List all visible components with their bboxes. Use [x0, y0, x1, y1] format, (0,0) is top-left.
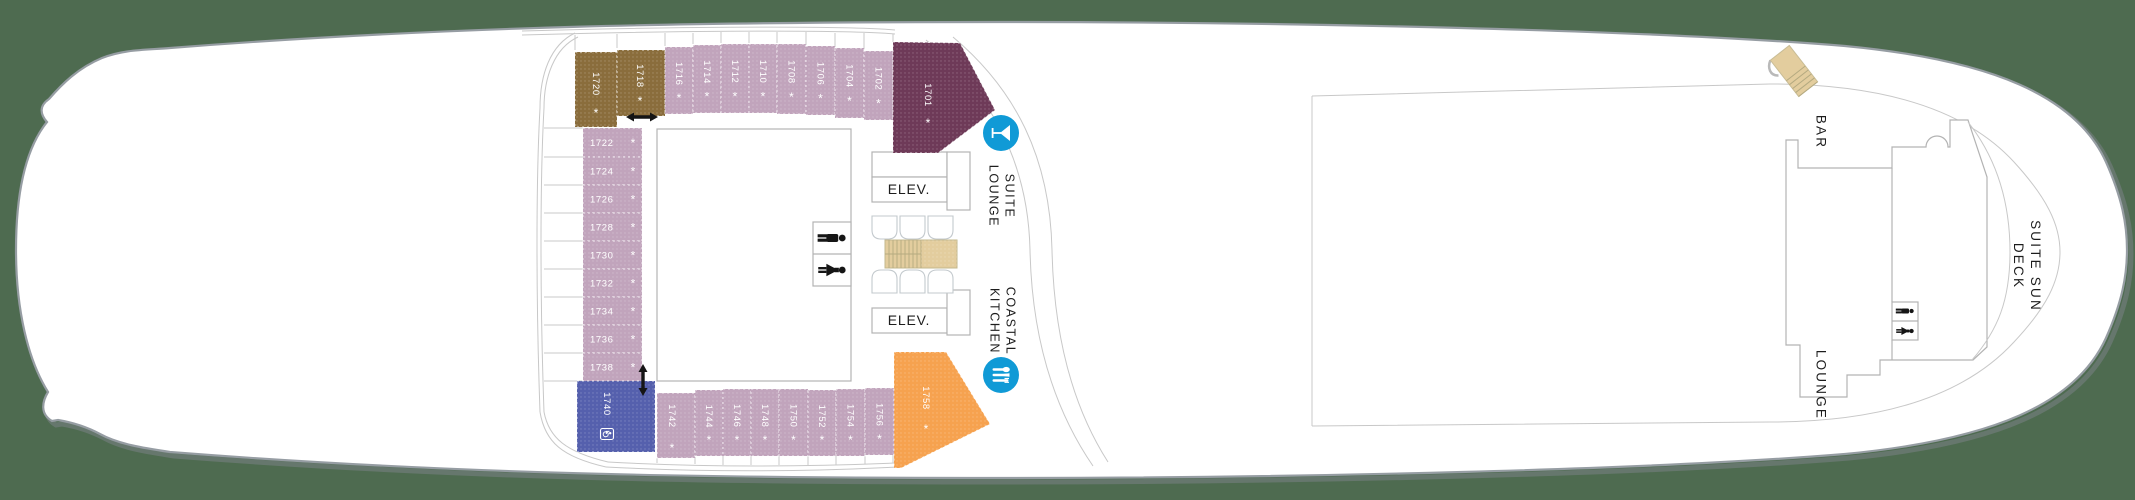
cabin-number: 1748 — [759, 404, 770, 428]
lounge-label: LOUNGE — [1812, 350, 1829, 420]
asterisk-symbol: * — [735, 433, 740, 447]
asterisk-symbol: * — [763, 433, 768, 447]
suite-lounge-label: SUITE LOUNGE — [985, 165, 1016, 227]
asterisk-symbol: * — [705, 90, 710, 104]
cabin-1708: 1708* — [777, 44, 806, 114]
cabin-number: 1724 — [590, 167, 614, 178]
cabin-1714: 1714* — [693, 45, 721, 113]
cabin-number: 1702 — [873, 67, 884, 91]
asterisk-symbol: * — [848, 433, 853, 447]
cabin-1748: 1748* — [751, 389, 779, 456]
cabin-1742: 1742* — [657, 393, 695, 458]
cabin-1734: 1734* — [583, 297, 642, 325]
cabin-1744: 1744* — [695, 390, 723, 456]
cabin-1724: 1724* — [583, 157, 642, 185]
cabin-number: 1720 — [590, 72, 601, 96]
cabin-1704: 1704* — [835, 48, 864, 118]
cabin-number: 1710 — [757, 60, 768, 84]
asterisk-symbol: * — [876, 96, 881, 110]
service-room — [947, 152, 970, 210]
asterisk-symbol: * — [594, 106, 599, 120]
elevator-label-bottom: ELEV. — [888, 312, 930, 328]
cabin-1726: 1726* — [583, 185, 642, 213]
cabin-number: 1742 — [666, 404, 677, 428]
asterisk-symbol: * — [818, 91, 823, 105]
asterisk-symbol: * — [631, 361, 636, 375]
asterisk-symbol: * — [631, 165, 636, 179]
asterisk-symbol: * — [707, 433, 712, 447]
cabin-1746: 1746* — [723, 389, 751, 456]
asterisk-symbol: * — [677, 91, 682, 105]
asterisk-symbol: * — [631, 249, 636, 263]
asterisk-symbol: * — [631, 277, 636, 291]
cabin-number: 1732 — [590, 279, 614, 290]
cabin-number: 1730 — [590, 251, 614, 262]
cabin-1718: 1718* — [617, 50, 665, 116]
cabin-1712: 1712* — [721, 44, 749, 113]
stairs-icon — [885, 240, 957, 268]
cabin-number: 1706 — [815, 62, 826, 86]
asterisk-symbol: * — [631, 305, 636, 319]
cabin-number: 1758 — [920, 386, 931, 410]
suite-sun-deck-label: SUITE SUN DECK — [2009, 212, 2043, 321]
asterisk-symbol: * — [926, 116, 931, 130]
asterisk-symbol: * — [638, 94, 643, 108]
asterisk-symbol: * — [733, 89, 738, 103]
cabin-1710: 1710* — [749, 44, 777, 113]
asterisk-symbol: * — [631, 221, 636, 235]
asterisk-symbol: * — [820, 433, 825, 447]
cabin-number: 1716 — [673, 62, 684, 86]
asterisk-symbol: * — [670, 441, 675, 455]
service-room — [947, 290, 970, 335]
martini-bar-icon — [983, 115, 1019, 151]
cabin-1732: 1732* — [583, 269, 642, 297]
cabin-1716: 1716* — [665, 47, 693, 114]
cabin-number: 1712 — [729, 60, 740, 84]
elevator-landing — [872, 152, 947, 177]
coastal-kitchen-label: COASTAL KITCHEN — [986, 287, 1017, 356]
asterisk-symbol: * — [631, 333, 636, 347]
asterisk-symbol: * — [631, 136, 636, 150]
cabin-number: 1738 — [590, 363, 614, 374]
cabin-number: 1704 — [844, 64, 855, 88]
cabin-number: 1736 — [590, 335, 614, 346]
asterisk-symbol: * — [791, 433, 796, 447]
dining-icon — [983, 357, 1019, 393]
cabin-1750: 1750* — [779, 389, 808, 456]
cabin-1720: 1720* — [575, 52, 617, 127]
asterisk-symbol: * — [761, 89, 766, 103]
asterisk-symbol: * — [877, 432, 882, 446]
cabin-number: 1726 — [590, 195, 614, 206]
cabin-number: 1746 — [731, 404, 742, 428]
cabin-1722: 1722* — [583, 128, 642, 157]
restroom-box-bow — [1892, 302, 1918, 340]
cabin-number: 1754 — [845, 404, 856, 428]
cabin-1728: 1728* — [583, 213, 642, 241]
asterisk-symbol: * — [631, 193, 636, 207]
asterisk-symbol: * — [924, 422, 929, 436]
deck-plan-stage: 1720*1718*1716*1714*1712*1710*1708*1706*… — [0, 0, 2135, 500]
cabin-number: 1701 — [922, 83, 933, 107]
cabin-1738: 1738* — [583, 353, 642, 381]
cabin-number: 1756 — [874, 403, 885, 427]
cabin-number: 1722 — [590, 138, 614, 149]
cabin-number: 1744 — [703, 405, 714, 429]
cabin-1752: 1752* — [808, 390, 836, 456]
cabin-1702: 1702* — [864, 51, 893, 120]
cabin-1736: 1736* — [583, 325, 642, 353]
cabin-1730: 1730* — [583, 241, 642, 269]
cabin-number: 1708 — [786, 60, 797, 84]
cabin-number: 1740 — [601, 392, 612, 416]
cabin-number: 1714 — [701, 60, 712, 84]
cabin-number: 1728 — [590, 223, 614, 234]
cabin-number: 1752 — [816, 405, 827, 429]
restroom-box-mid — [813, 222, 851, 286]
bar-label: BAR — [1812, 115, 1829, 149]
deck-plan-svg: 1720*1718*1716*1714*1712*1710*1708*1706*… — [0, 0, 2135, 500]
cabin-number: 1718 — [634, 64, 645, 88]
asterisk-symbol: * — [847, 94, 852, 108]
elevator-label-top: ELEV. — [888, 181, 930, 197]
cabin-number: 1734 — [590, 307, 614, 318]
cabin-number: 1750 — [788, 404, 799, 428]
cabin-1756: 1756* — [865, 388, 894, 455]
cabin-1754: 1754* — [836, 389, 865, 456]
asterisk-symbol: * — [789, 90, 794, 104]
cabin-1706: 1706* — [806, 46, 835, 115]
